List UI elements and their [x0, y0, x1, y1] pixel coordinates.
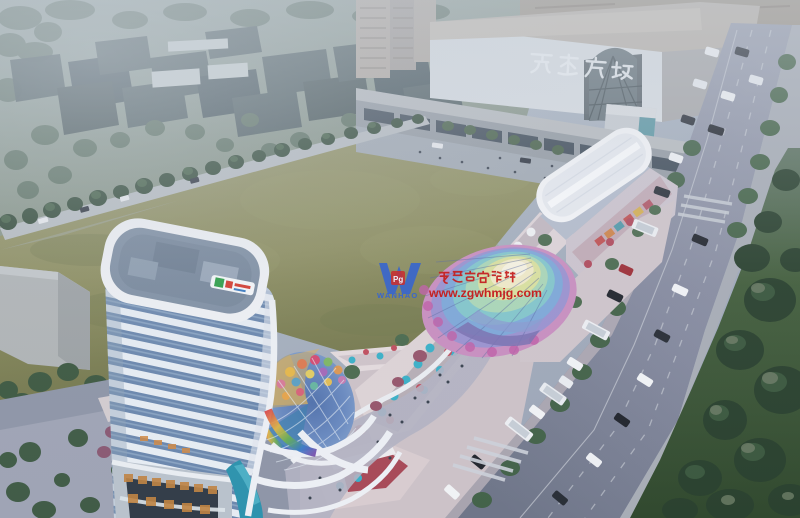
svg-text:Pg: Pg	[393, 275, 403, 284]
svg-text:www.zgwhmjg.com: www.zgwhmjg.com	[428, 286, 542, 300]
svg-text:WANHAO: WANHAO	[377, 291, 418, 300]
